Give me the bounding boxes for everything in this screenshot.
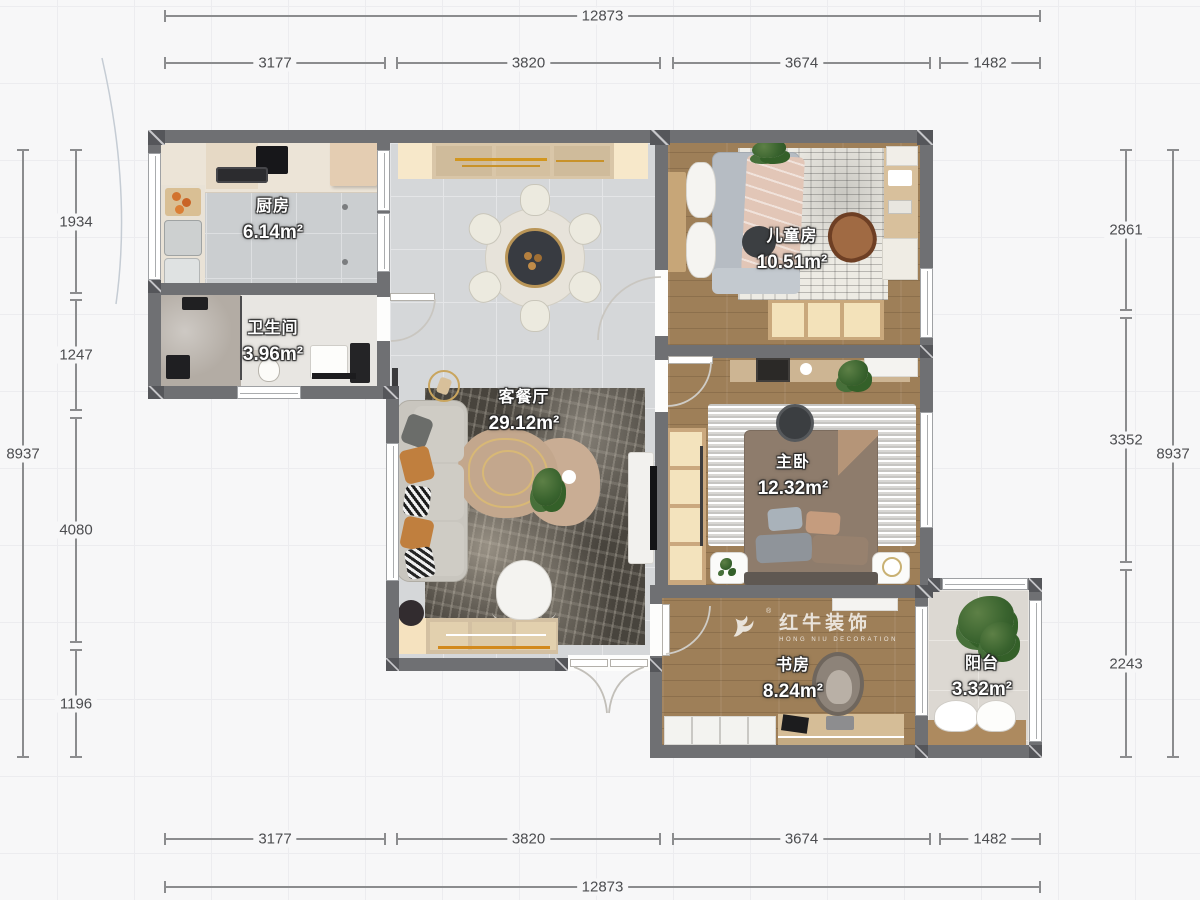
kitchen-area: 6.14m² (243, 222, 303, 244)
master-name: 主卧 (758, 448, 829, 472)
dim-right-seg-3: 2243 (1125, 570, 1127, 757)
dim-top-seg-1: 3177 (165, 62, 385, 64)
study-name: 书房 (763, 651, 823, 675)
room-label-study: 书房 8.24m² (763, 651, 823, 703)
balcony-area: 3.32m² (952, 679, 1012, 701)
dim-top-seg-3: 3674 (673, 62, 930, 64)
room-label-kitchen: 厨房 6.14m² (243, 192, 303, 244)
dim-bottom-seg-1: 3177 (165, 838, 385, 840)
living-area: 29.12m² (489, 413, 560, 435)
dim-top-total: 12873 (165, 15, 1040, 17)
dim-left-total: 8937 (22, 150, 24, 757)
dim-left-seg-1: 1934 (75, 150, 77, 293)
kids-area: 10.51m² (757, 252, 828, 274)
floorplan-canvas: 12873 3177 3820 3674 1482 3177 3820 3674… (0, 0, 1200, 900)
dim-bottom-seg-3: 3674 (673, 838, 930, 840)
kids-name: 儿童房 (757, 222, 828, 246)
study-area: 8.24m² (763, 681, 823, 703)
dim-left-seg-4: 1196 (75, 650, 77, 757)
dim-right-total: 8937 (1172, 150, 1174, 757)
room-label-kids: 儿童房 10.51m² (757, 222, 828, 274)
room-label-bathroom: 卫生间 3.96m² (243, 314, 303, 366)
dim-bottom-seg-4: 1482 (940, 838, 1040, 840)
bull-logo-icon (728, 611, 758, 641)
dim-left-seg-2: 1247 (75, 300, 77, 410)
room-label-master: 主卧 12.32m² (758, 448, 829, 500)
door-arcs (0, 0, 1200, 900)
watermark: ® 红牛装饰 HONG NIU DECORATION (728, 608, 898, 643)
dim-bottom-seg-2: 3820 (397, 838, 660, 840)
dim-top-seg-2: 3820 (397, 62, 660, 64)
dim-top-seg-4: 1482 (940, 62, 1040, 64)
kitchen-name: 厨房 (243, 192, 303, 216)
balcony-name: 阳台 (952, 649, 1012, 673)
watermark-en-text: HONG NIU DECORATION (779, 637, 898, 643)
room-label-living: 客餐厅 29.12m² (489, 383, 560, 435)
bathroom-area: 3.96m² (243, 344, 303, 366)
dim-left-seg-3: 4080 (75, 418, 77, 642)
dim-right-seg-1: 2861 (1125, 150, 1127, 310)
dim-bottom-total: 12873 (165, 886, 1040, 888)
dim-right-seg-2: 3352 (1125, 318, 1127, 562)
room-label-balcony: 阳台 3.32m² (952, 649, 1012, 701)
watermark-reg: ® (766, 608, 771, 615)
living-name: 客餐厅 (489, 383, 560, 407)
bathroom-name: 卫生间 (243, 314, 303, 338)
watermark-cn-text: 红牛装饰 (779, 613, 871, 634)
master-area: 12.32m² (758, 478, 829, 500)
